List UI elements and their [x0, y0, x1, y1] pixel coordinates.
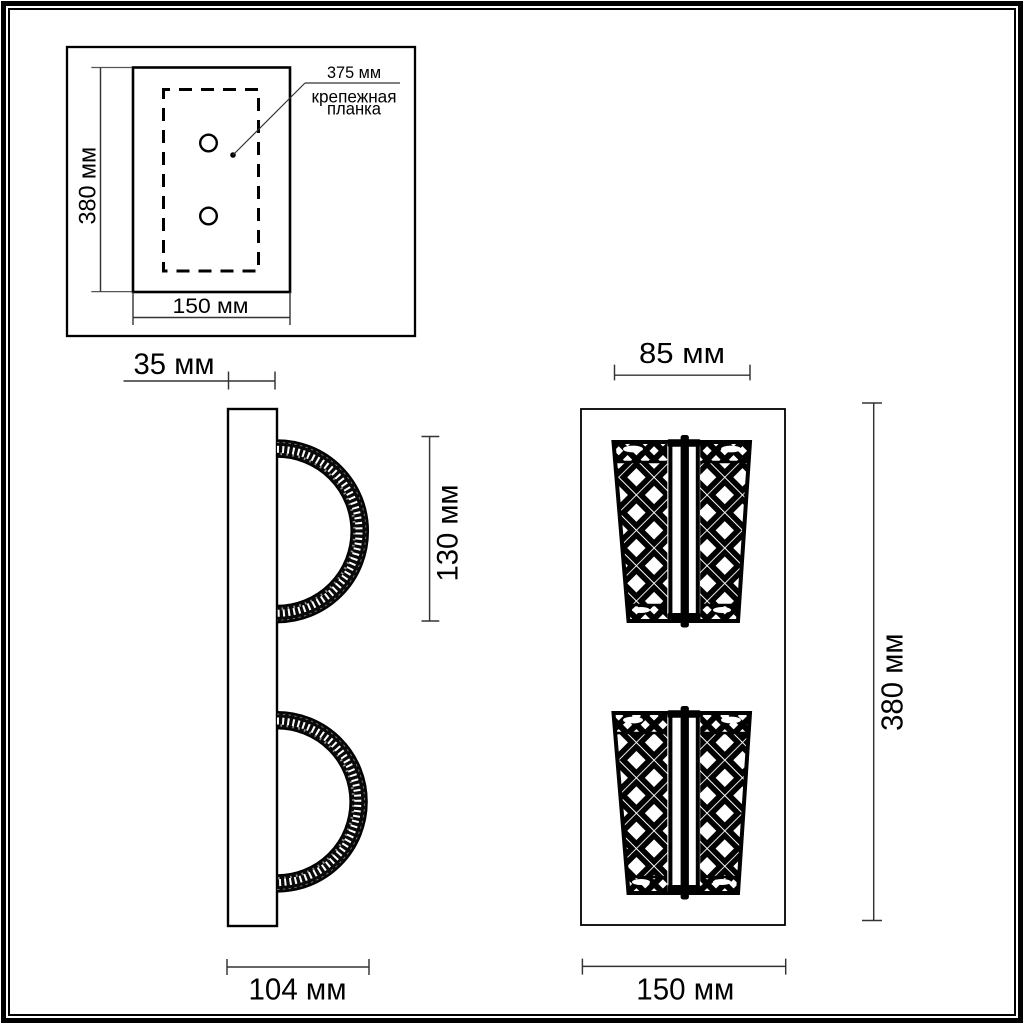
svg-text:85 мм: 85 мм	[639, 338, 725, 370]
svg-text:130 мм: 130 мм	[431, 484, 464, 581]
svg-text:375 мм: 375 мм	[327, 64, 381, 82]
svg-text:150 мм: 150 мм	[636, 972, 734, 1007]
svg-text:150 мм: 150 мм	[173, 294, 249, 318]
svg-text:планка: планка	[327, 99, 381, 119]
svg-text:35 мм: 35 мм	[134, 348, 215, 381]
svg-text:380 мм: 380 мм	[75, 147, 102, 225]
svg-text:104 мм: 104 мм	[249, 972, 347, 1007]
svg-text:380 мм: 380 мм	[874, 633, 909, 731]
